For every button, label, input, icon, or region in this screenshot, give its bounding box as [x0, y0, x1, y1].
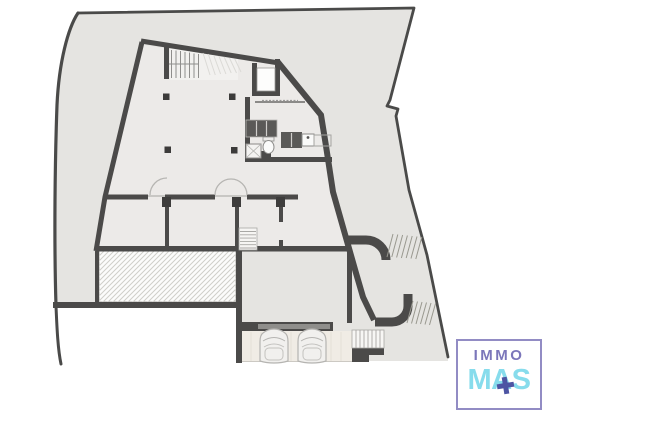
garage-left-wall: [236, 251, 242, 363]
floor-plan: [0, 0, 648, 439]
stair-side-wall-a: [352, 348, 384, 355]
logo-line-mas-row: MAS: [468, 365, 531, 400]
bottom-wall: [53, 302, 239, 308]
toilet: [263, 137, 274, 154]
logo-line-immo: IMMO: [458, 348, 540, 364]
car-top-view-2: [298, 329, 326, 363]
elevator-wall-right: [275, 59, 280, 96]
garage-floor: [242, 331, 352, 362]
garage-door: [258, 324, 330, 329]
partition-cap-2: [232, 197, 241, 207]
elevator-wall-bottom: [252, 91, 280, 96]
logo-plus-icon: [495, 376, 514, 395]
hatched-terrace: [99, 251, 236, 302]
car-top-view-1: [260, 329, 288, 363]
kitchen-counter-1: [246, 120, 277, 137]
immo-mas-logo: IMMO MAS: [456, 339, 542, 410]
stair-side-wall-b: [352, 355, 369, 362]
boundary-tail: [56, 306, 61, 364]
band-bottom-wall: [96, 246, 351, 252]
partition-cap-3: [276, 197, 285, 207]
floor-plan-page: IMMO MAS: [0, 0, 648, 439]
garage-side-stairs: [352, 330, 384, 348]
elevator-shaft: [257, 68, 275, 91]
garage-right-wall: [347, 251, 352, 323]
sink: [302, 134, 314, 146]
interior-staircase: [239, 228, 257, 250]
partition-cap-1: [162, 197, 171, 207]
